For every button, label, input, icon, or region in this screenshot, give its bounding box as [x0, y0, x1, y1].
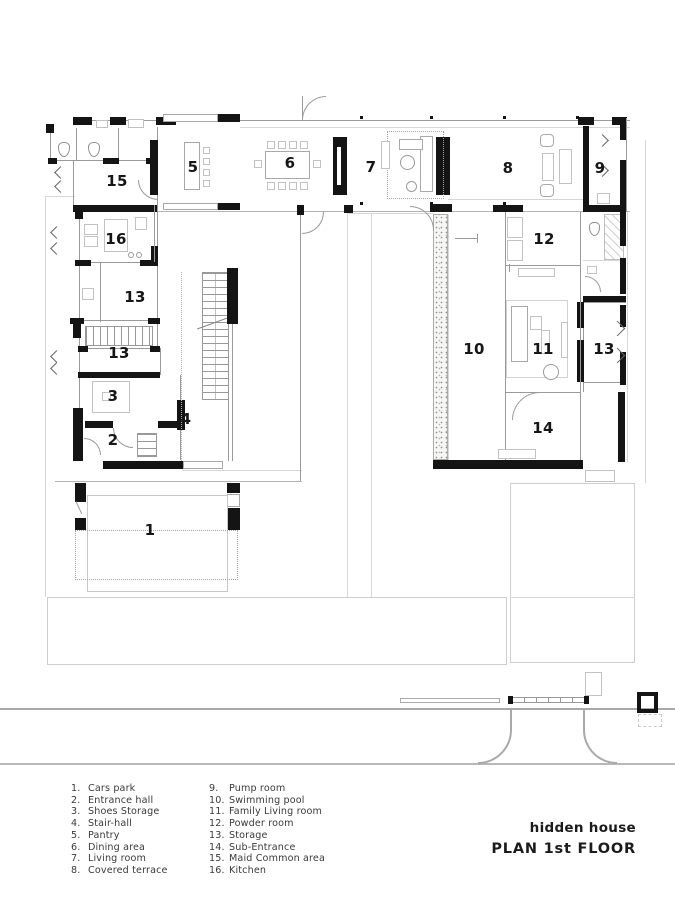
wall-segment — [620, 212, 626, 246]
door-swing — [585, 276, 601, 292]
legend-label: Swimming pool — [229, 795, 305, 807]
column-dot — [360, 116, 363, 119]
partition-line — [76, 128, 77, 160]
legend-label: Storage — [229, 830, 268, 842]
site-line — [645, 140, 646, 483]
wall-segment — [110, 117, 126, 125]
sliding-gate — [400, 698, 500, 703]
wall-segment — [85, 421, 113, 428]
legend-column-1: 1.Cars park 2.Entrance hall 3.Shoes Stor… — [71, 783, 209, 877]
gate-pocket — [585, 672, 602, 696]
door-swing — [138, 180, 158, 200]
wall-segment — [78, 372, 160, 378]
wall-segment — [75, 518, 86, 530]
legend-number: 13. — [209, 830, 229, 842]
road-line — [0, 708, 675, 710]
stool — [203, 169, 210, 176]
chair — [254, 160, 262, 168]
pool-edge — [448, 214, 449, 460]
legend-number: 1. — [71, 783, 88, 795]
tv-console — [381, 141, 390, 169]
toilet-fixture — [58, 142, 70, 157]
legend-item: 13.Storage — [209, 830, 379, 842]
wall-segment — [218, 114, 240, 122]
sink-fixture — [96, 120, 108, 128]
fixture — [82, 288, 94, 300]
site-line — [45, 196, 75, 197]
partition-line — [73, 160, 74, 205]
wall-line — [55, 481, 302, 482]
wall-segment — [583, 126, 589, 206]
legend-number: 9. — [209, 783, 229, 795]
room-label-11: 11 — [532, 340, 553, 358]
wall-line — [228, 324, 229, 461]
partition-line — [154, 205, 155, 262]
window-glass — [337, 147, 341, 185]
room-label-13b: 13 — [108, 344, 129, 362]
wall-segment — [148, 318, 160, 324]
window-band — [163, 114, 218, 122]
wall-segment — [103, 461, 183, 469]
chair — [289, 182, 297, 190]
column-dot — [430, 202, 433, 205]
sink-fixture — [597, 193, 610, 204]
column-dot — [503, 116, 506, 119]
wall-segment — [158, 421, 180, 428]
column-dot — [576, 116, 579, 119]
counter — [135, 217, 147, 230]
room-label-9: 9 — [595, 159, 606, 177]
legend-label: Sub-Entrance — [229, 842, 296, 854]
stool — [128, 252, 134, 258]
wall-segment — [218, 203, 240, 210]
gate-track — [512, 697, 585, 703]
wall-segment — [73, 117, 92, 125]
chair — [278, 141, 286, 149]
door-swing — [84, 438, 101, 455]
room-label-10: 10 — [463, 340, 484, 358]
legend-label: Living room — [88, 853, 146, 865]
stool — [203, 180, 210, 187]
terrace-table — [542, 153, 554, 181]
chair — [267, 141, 275, 149]
shelf — [518, 268, 555, 277]
room-label-2: 2 — [108, 431, 119, 449]
armchair — [540, 184, 554, 197]
legend-number: 10. — [209, 795, 229, 807]
lounge-chair — [543, 364, 559, 380]
legend-number: 7. — [71, 853, 88, 865]
driveway-curb — [478, 709, 512, 764]
room-label-12: 12 — [533, 230, 554, 248]
pool-gutter-texture — [433, 214, 448, 460]
legend-item: 11.Family Living room — [209, 806, 379, 818]
floor-lamp — [406, 181, 417, 192]
stool — [203, 147, 210, 154]
room-label-5: 5 — [188, 158, 199, 176]
louver-window-icon — [596, 134, 609, 147]
legend-label: Pantry — [88, 830, 120, 842]
floor-plan-sheet: 1 2 3 4 5 6 7 8 9 10 11 12 13 13 13 14 1… — [0, 0, 675, 900]
stair-rail — [215, 272, 216, 400]
room-label-13c: 13 — [593, 340, 614, 358]
chair — [289, 141, 297, 149]
wall-line — [158, 211, 630, 212]
legend-item: 12.Powder room — [209, 818, 379, 830]
dimension-tick — [509, 264, 510, 272]
console — [559, 149, 572, 184]
legend-label: Powder room — [229, 818, 294, 830]
partition-line — [160, 348, 161, 375]
entry-steps — [85, 326, 153, 346]
project-title: hidden house — [420, 820, 636, 836]
closet — [507, 240, 523, 261]
room-label-14: 14 — [532, 419, 553, 437]
porch-step — [585, 470, 615, 482]
side-table — [530, 316, 542, 330]
door-swing — [512, 392, 540, 420]
legend-number: 16. — [209, 865, 229, 877]
car-park-outline — [75, 530, 238, 580]
legend-item: 14.Sub-Entrance — [209, 842, 379, 854]
legend-item: 9.Pump room — [209, 783, 379, 795]
room-label-8: 8 — [503, 159, 514, 177]
wall-line — [302, 96, 303, 120]
room-label-15: 15 — [106, 172, 127, 190]
door-swing — [302, 212, 324, 234]
wall-segment — [150, 346, 160, 352]
doormat — [498, 449, 536, 459]
wall-line — [183, 470, 302, 471]
wall-segment — [73, 408, 83, 461]
legend-label: Shoes Storage — [88, 806, 159, 818]
legend-item: 10.Swimming pool — [209, 795, 379, 807]
legend-label: Cars park — [88, 783, 135, 795]
gate-post — [584, 696, 589, 704]
wall-segment — [583, 205, 626, 212]
wall-segment — [103, 158, 119, 164]
legend-number: 15. — [209, 853, 229, 865]
sofa-seat — [399, 139, 423, 150]
louver-window-icon — [50, 350, 63, 363]
chair — [300, 141, 308, 149]
legend-item: 3.Shoes Storage — [71, 806, 209, 818]
column-dot — [430, 116, 433, 119]
chair — [313, 160, 321, 168]
legend-number: 14. — [209, 842, 229, 854]
plan-title: PLAN 1st FLOOR — [420, 841, 636, 857]
window-band — [227, 494, 240, 507]
sink-fixture — [587, 266, 597, 274]
legend-item: 16.Kitchen — [209, 865, 379, 877]
wall-line — [300, 210, 301, 462]
legend-number: 3. — [71, 806, 88, 818]
wall-segment — [75, 483, 86, 502]
legend-item: 6.Dining area — [71, 842, 209, 854]
legend-number: 5. — [71, 830, 88, 842]
legend-label: Family Living room — [229, 806, 322, 818]
wall-line — [626, 118, 627, 212]
room-label-3: 3 — [108, 387, 119, 405]
terrace-edge — [448, 199, 583, 200]
louver-window-icon — [50, 362, 63, 375]
armchair — [540, 134, 554, 147]
wall-line — [300, 460, 301, 481]
wall-segment — [227, 508, 240, 530]
sofa — [511, 306, 528, 362]
boundary-dotted — [181, 272, 183, 461]
stool — [136, 252, 142, 258]
site-rect — [47, 597, 507, 665]
partition-line — [505, 392, 580, 393]
wall-segment — [578, 117, 594, 125]
room-label-1: 1 — [145, 521, 156, 539]
column-dot — [360, 202, 363, 205]
terrace-edge — [240, 127, 630, 128]
tv-console — [561, 322, 568, 358]
dimension-tick — [477, 234, 478, 243]
chair — [278, 182, 286, 190]
wall-segment — [78, 346, 88, 352]
room-label-6: 6 — [285, 154, 296, 172]
appliance — [84, 224, 98, 235]
dimension-tick — [455, 238, 477, 239]
toilet-fixture — [589, 222, 600, 236]
wall-segment — [227, 483, 240, 493]
gate-post — [508, 696, 513, 704]
legend-label: Pump room — [229, 783, 285, 795]
legend-number: 4. — [71, 818, 88, 830]
louver-window-icon — [54, 166, 67, 179]
wall-line — [232, 324, 233, 461]
wall-segment — [75, 260, 91, 266]
legend-item: 4.Stair-hall — [71, 818, 209, 830]
walkway-line — [347, 213, 348, 597]
legend-item: 1.Cars park — [71, 783, 209, 795]
toilet-fixture — [88, 142, 100, 157]
legend-label: Stair-hall — [88, 818, 132, 830]
wall-segment — [433, 460, 583, 469]
wall-segment — [73, 205, 158, 212]
legend-label: Dining area — [88, 842, 145, 854]
room-label-16: 16 — [105, 230, 126, 248]
legend-number: 2. — [71, 795, 88, 807]
wall-segment — [493, 205, 523, 212]
wall-segment — [75, 205, 83, 219]
legend-label: Kitchen — [229, 865, 266, 877]
legend: 1.Cars park 2.Entrance hall 3.Shoes Stor… — [71, 783, 379, 877]
wall-segment — [48, 158, 57, 164]
driveway-curb — [583, 709, 617, 764]
legend-number: 12. — [209, 818, 229, 830]
site-line — [510, 597, 635, 598]
gate-swing-dashed — [638, 714, 662, 727]
wall-segment — [344, 205, 353, 213]
legend-item: 7.Living room — [71, 853, 209, 865]
window-band — [163, 203, 218, 210]
wall-line — [580, 392, 581, 460]
partition-line — [583, 302, 626, 303]
room-label-4: 4 — [181, 410, 192, 428]
wall-segment — [46, 124, 54, 133]
louver-window-icon — [50, 226, 63, 239]
partition-line — [505, 265, 580, 266]
legend-item: 8.Covered terrace — [71, 865, 209, 877]
legend-number: 8. — [71, 865, 88, 877]
legend-number: 11. — [209, 806, 229, 818]
legend-column-2: 9.Pump room 10.Swimming pool 11.Family L… — [209, 783, 379, 877]
room-label-7: 7 — [366, 158, 377, 176]
wall-segment — [430, 204, 452, 212]
legend-item: 15.Maid Common area — [209, 853, 379, 865]
wall-segment — [620, 258, 626, 294]
stool — [203, 158, 210, 165]
entry-post — [637, 692, 658, 713]
legend-item: 2.Entrance hall — [71, 795, 209, 807]
site-rect — [510, 483, 635, 663]
legend-number: 6. — [71, 842, 88, 854]
legend-item: 5.Pantry — [71, 830, 209, 842]
closet — [507, 217, 523, 238]
partition-line — [118, 128, 119, 160]
title-block: hidden house PLAN 1st FLOOR — [420, 820, 636, 857]
appliance — [84, 236, 98, 247]
walkway-line — [371, 213, 372, 597]
door-swing — [302, 96, 326, 120]
wall-line — [627, 212, 628, 462]
louver-window-icon — [50, 242, 63, 255]
window-band — [183, 461, 223, 469]
louver-window-icon — [54, 180, 67, 193]
chair — [267, 182, 275, 190]
column-dot — [503, 202, 506, 205]
chair — [300, 182, 308, 190]
entry-steps — [137, 433, 157, 457]
round-table — [400, 155, 415, 170]
site-line — [45, 196, 46, 597]
partition-line — [100, 262, 101, 322]
legend-label: Entrance hall — [88, 795, 153, 807]
road-line — [0, 763, 675, 765]
gate-leaf — [76, 501, 83, 514]
legend-label: Covered terrace — [88, 865, 168, 877]
wall-segment — [227, 268, 238, 324]
legend-label: Maid Common area — [229, 853, 325, 865]
wall-segment — [70, 318, 84, 324]
wall-segment — [618, 392, 625, 462]
sink-fixture — [128, 119, 144, 128]
room-label-13a: 13 — [124, 288, 145, 306]
